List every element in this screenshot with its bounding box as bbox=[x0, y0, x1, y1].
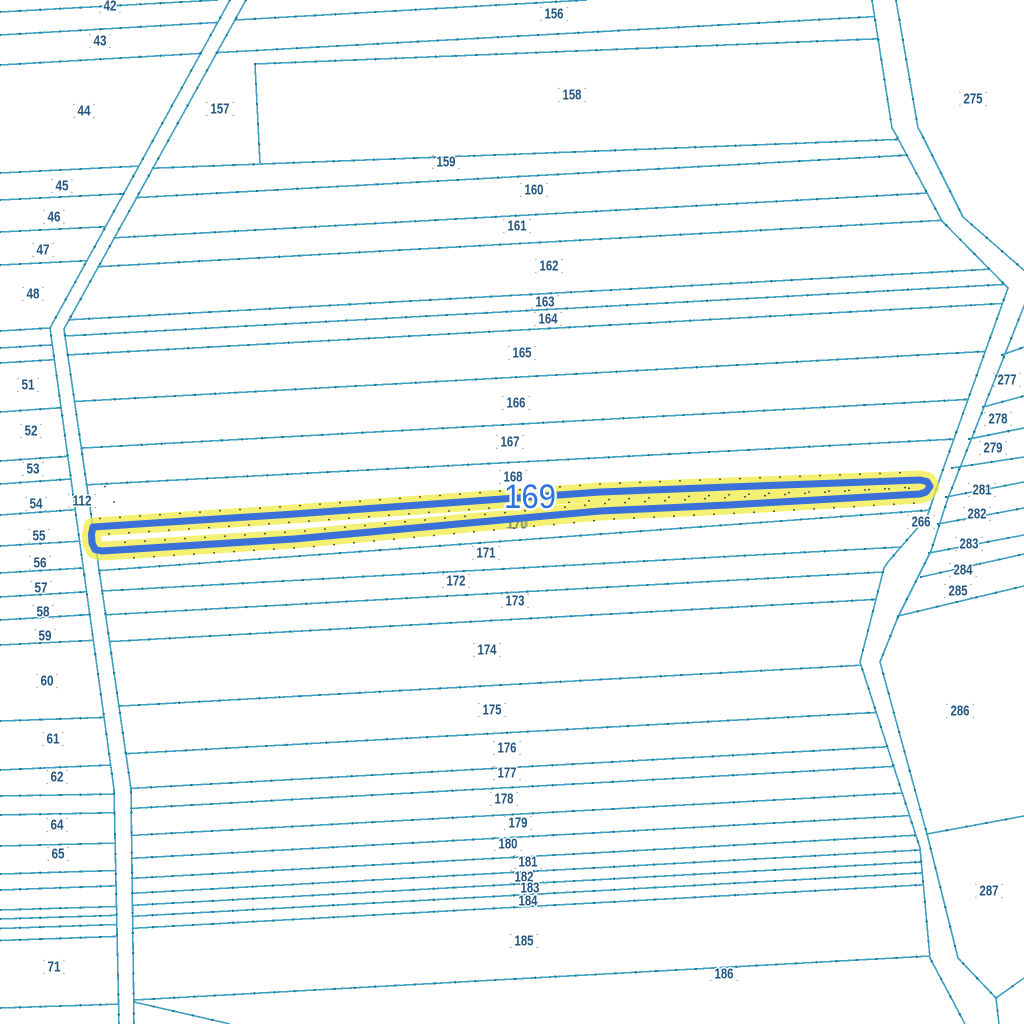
svg-text:55: 55 bbox=[33, 528, 46, 545]
svg-text:57: 57 bbox=[35, 580, 48, 597]
svg-text:156: 156 bbox=[545, 6, 564, 23]
svg-text:164: 164 bbox=[539, 311, 558, 328]
svg-text:163: 163 bbox=[536, 294, 555, 311]
svg-text:177: 177 bbox=[498, 765, 517, 782]
svg-text:287: 287 bbox=[980, 883, 999, 900]
svg-text:180: 180 bbox=[499, 836, 518, 853]
svg-text:158: 158 bbox=[563, 87, 582, 104]
svg-text:60: 60 bbox=[41, 673, 54, 690]
svg-text:172: 172 bbox=[447, 573, 466, 590]
svg-text:46: 46 bbox=[48, 209, 61, 226]
svg-text:277: 277 bbox=[998, 372, 1017, 389]
svg-text:71: 71 bbox=[48, 959, 61, 976]
svg-text:58: 58 bbox=[37, 604, 50, 621]
svg-text:279: 279 bbox=[984, 440, 1003, 457]
svg-text:166: 166 bbox=[507, 395, 526, 412]
svg-text:161: 161 bbox=[508, 218, 527, 235]
svg-text:65: 65 bbox=[52, 846, 65, 863]
svg-text:286: 286 bbox=[951, 703, 970, 720]
svg-text:159: 159 bbox=[437, 154, 456, 171]
svg-text:42: 42 bbox=[104, 0, 117, 15]
svg-text:173: 173 bbox=[506, 593, 525, 610]
svg-text:174: 174 bbox=[478, 642, 497, 659]
svg-text:160: 160 bbox=[525, 182, 544, 199]
svg-text:162: 162 bbox=[540, 258, 559, 275]
svg-text:51: 51 bbox=[22, 377, 35, 394]
svg-text:283: 283 bbox=[960, 536, 979, 553]
svg-text:175: 175 bbox=[483, 702, 502, 719]
svg-text:61: 61 bbox=[47, 731, 60, 748]
svg-text:179: 179 bbox=[509, 815, 528, 832]
svg-text:184: 184 bbox=[519, 893, 538, 910]
svg-text:43: 43 bbox=[94, 33, 107, 50]
svg-text:165: 165 bbox=[513, 345, 532, 362]
svg-text:178: 178 bbox=[495, 791, 514, 808]
svg-text:52: 52 bbox=[25, 423, 38, 440]
svg-text:56: 56 bbox=[34, 555, 47, 572]
svg-text:53: 53 bbox=[27, 461, 40, 478]
svg-text:278: 278 bbox=[989, 411, 1008, 428]
svg-text:281: 281 bbox=[973, 482, 992, 499]
svg-text:44: 44 bbox=[78, 103, 92, 120]
svg-text:45: 45 bbox=[56, 178, 69, 195]
svg-text:285: 285 bbox=[949, 583, 968, 600]
svg-text:157: 157 bbox=[211, 101, 230, 118]
svg-text:64: 64 bbox=[51, 817, 65, 834]
svg-text:186: 186 bbox=[715, 966, 734, 983]
svg-text:112: 112 bbox=[73, 493, 92, 510]
svg-text:48: 48 bbox=[27, 286, 40, 303]
svg-text:47: 47 bbox=[37, 242, 50, 259]
svg-text:169: 169 bbox=[504, 478, 556, 516]
svg-text:282: 282 bbox=[968, 506, 987, 523]
svg-text:176: 176 bbox=[498, 740, 517, 757]
svg-text:171: 171 bbox=[477, 545, 496, 562]
svg-text:185: 185 bbox=[515, 933, 534, 950]
svg-text:275: 275 bbox=[964, 91, 983, 108]
svg-text:59: 59 bbox=[39, 628, 52, 645]
svg-text:54: 54 bbox=[30, 496, 44, 513]
svg-text:284: 284 bbox=[954, 562, 973, 579]
svg-text:266: 266 bbox=[912, 514, 931, 531]
svg-text:167: 167 bbox=[501, 434, 520, 451]
svg-text:62: 62 bbox=[51, 769, 64, 786]
